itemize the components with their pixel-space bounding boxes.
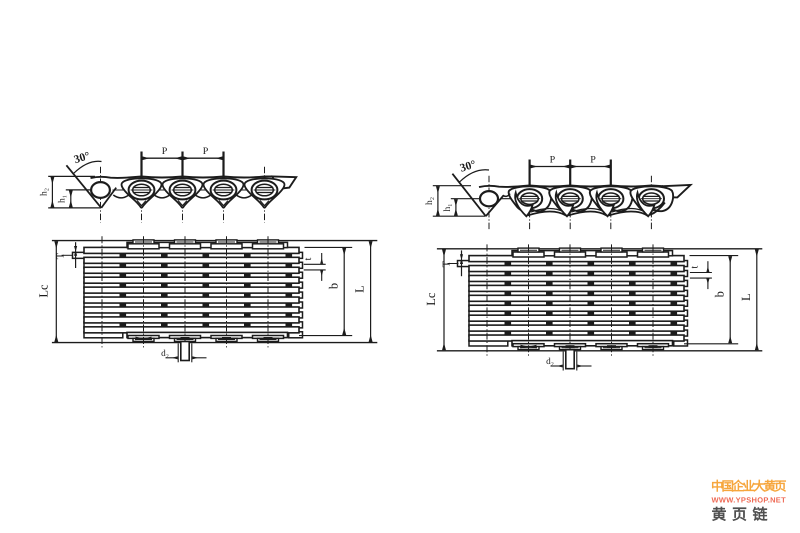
svg-text:中国企业大黄页: 中国企业大黄页: [711, 479, 787, 494]
svg-text:P: P: [590, 155, 596, 166]
svg-text:d₂: d₂: [546, 356, 554, 366]
svg-text:h₂: h₂: [40, 188, 50, 196]
svg-text:t: t: [303, 257, 314, 260]
svg-text:Lc: Lc: [36, 284, 50, 298]
svg-text:L: L: [739, 293, 753, 301]
svg-text:WWW.YPSHOP.NET: WWW.YPSHOP.NET: [712, 496, 787, 505]
svg-text:b: b: [327, 283, 341, 289]
svg-text:Lc: Lc: [424, 292, 438, 306]
svg-text:h₁: h₁: [443, 203, 453, 211]
svg-text:P: P: [203, 146, 209, 157]
svg-text:黄页链: 黄页链: [712, 507, 774, 524]
svg-text:t: t: [689, 266, 700, 269]
svg-text:T: T: [442, 260, 453, 267]
svg-text:30°: 30°: [73, 150, 92, 166]
svg-text:h₁: h₁: [58, 195, 68, 203]
svg-text:h₂: h₂: [425, 197, 435, 205]
svg-text:b: b: [713, 291, 727, 297]
svg-text:P: P: [162, 146, 168, 157]
svg-text:P: P: [550, 155, 556, 166]
svg-text:d₂: d₂: [161, 348, 169, 358]
svg-text:L: L: [353, 285, 367, 293]
svg-text:T: T: [56, 252, 67, 259]
